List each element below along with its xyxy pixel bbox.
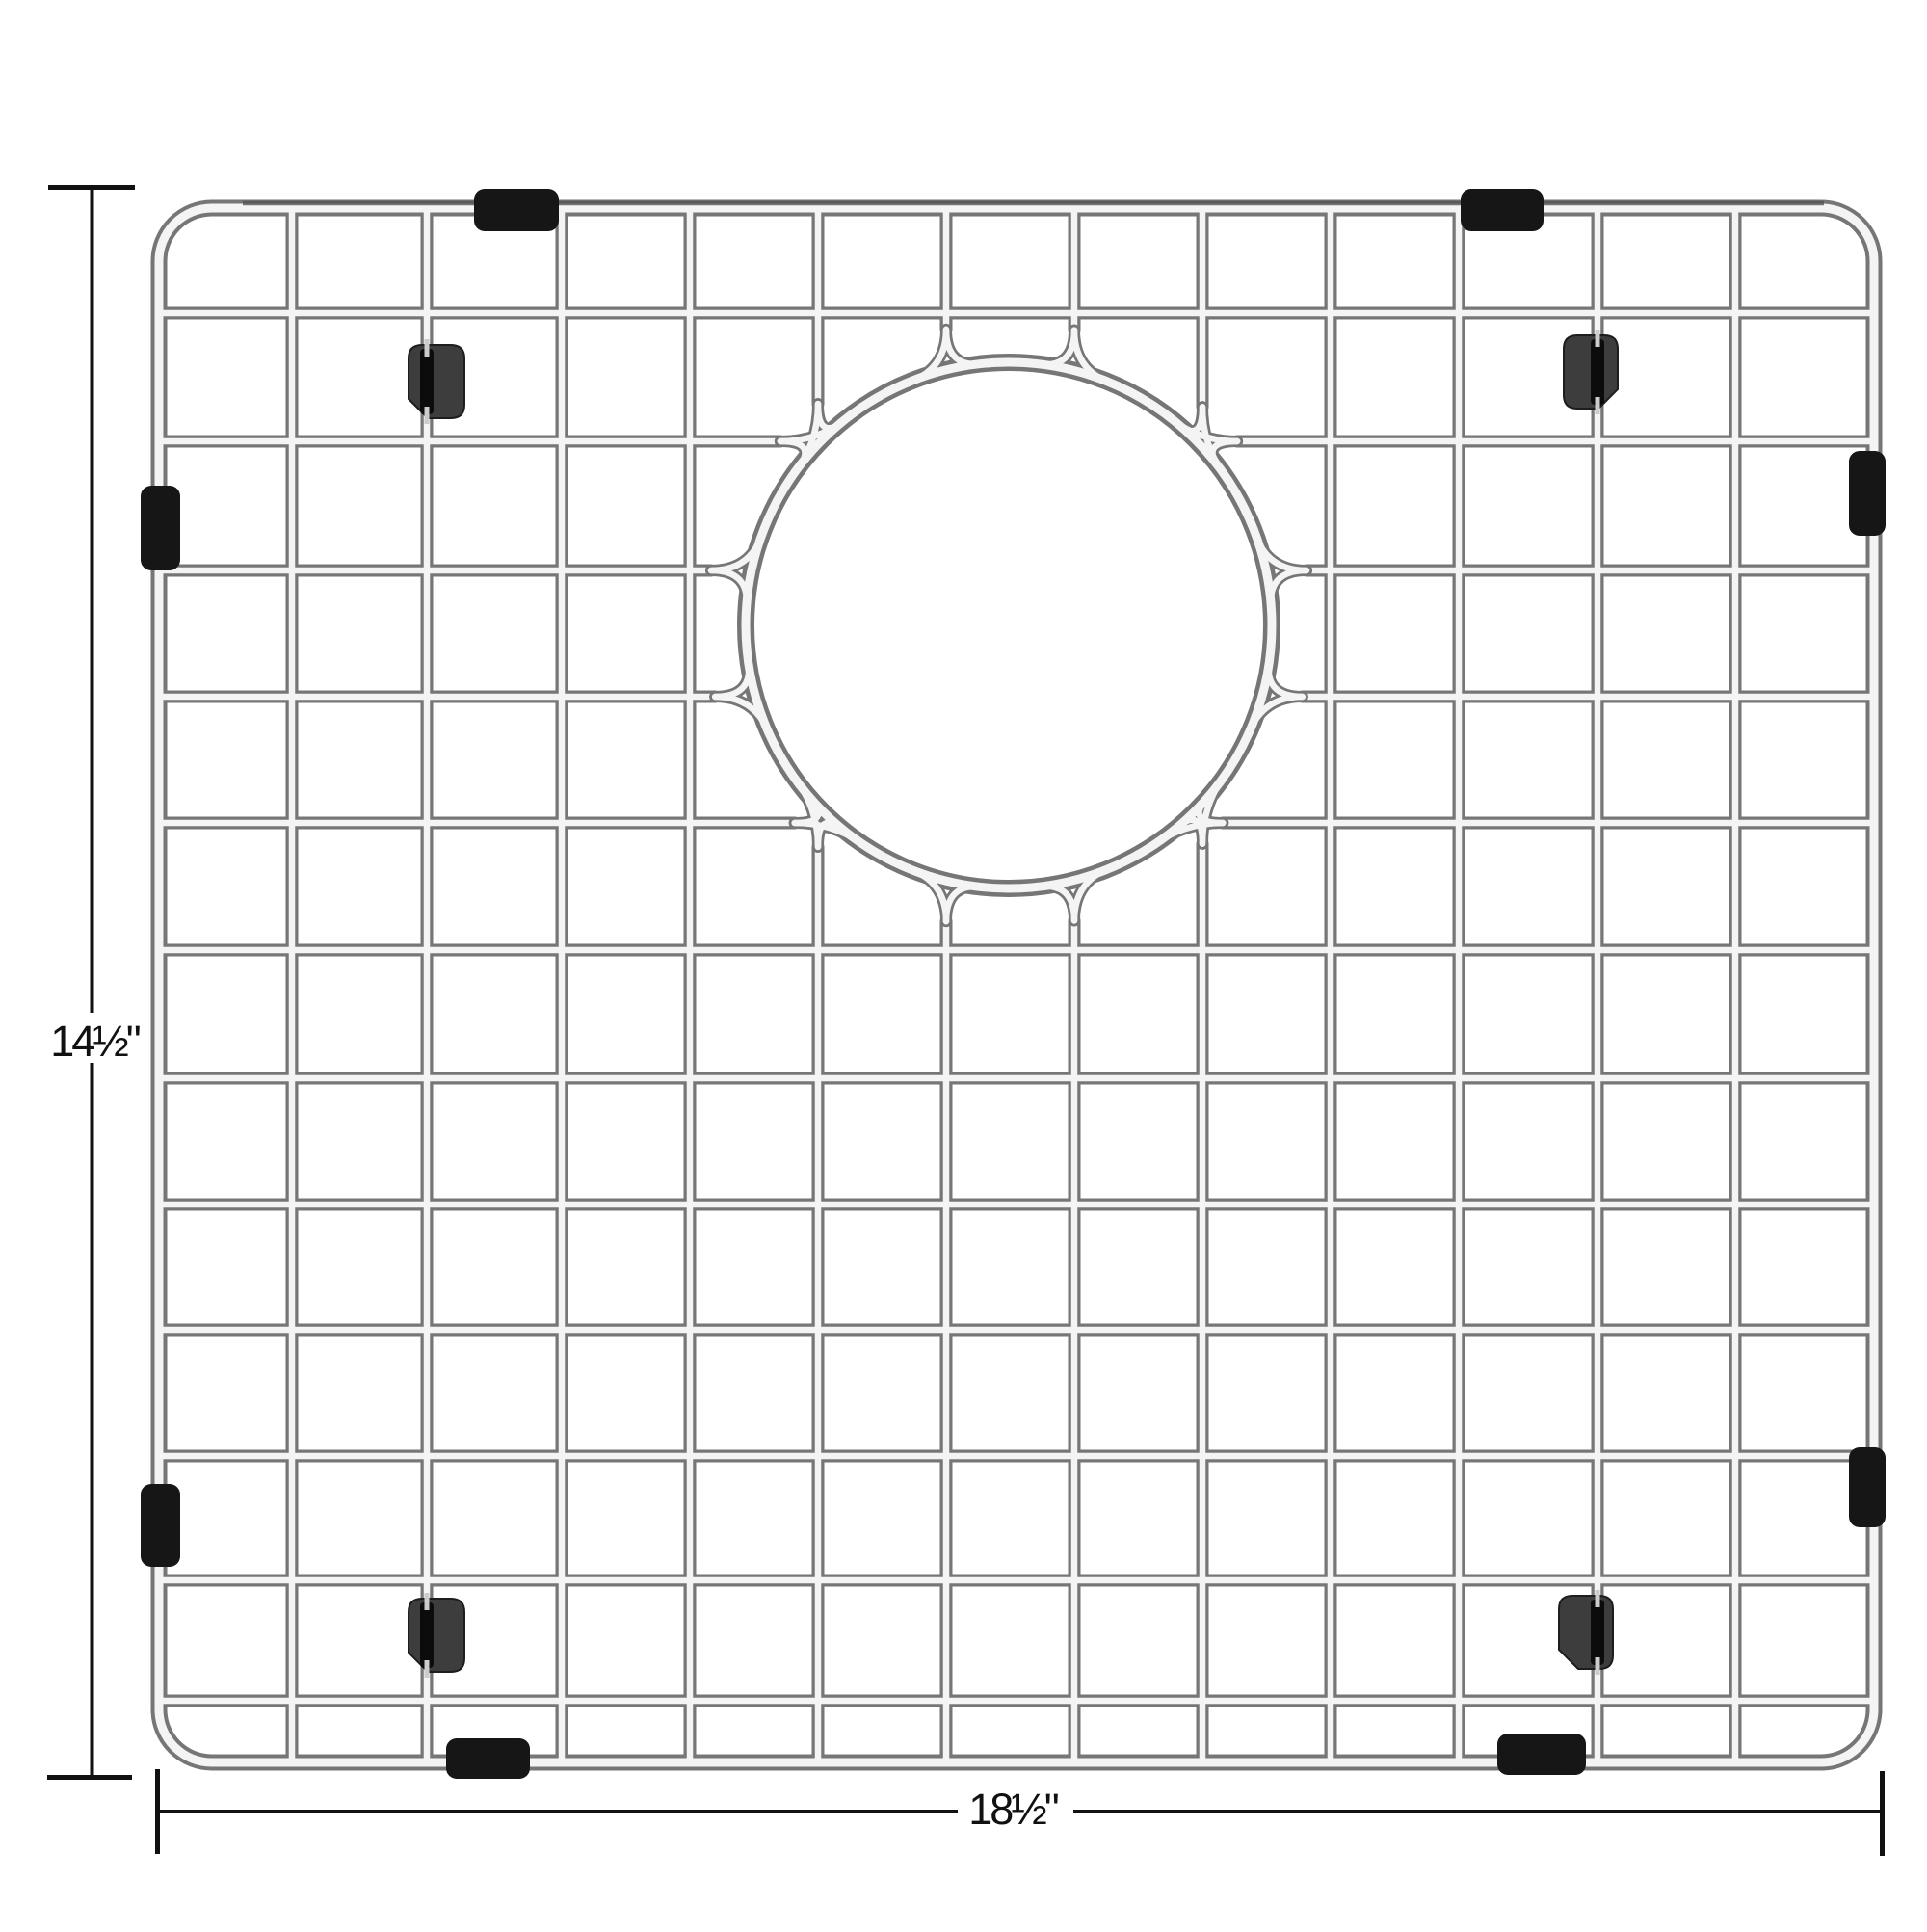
svg-text:18½": 18½" [968, 1785, 1059, 1834]
svg-text:14½": 14½" [50, 1017, 141, 1066]
